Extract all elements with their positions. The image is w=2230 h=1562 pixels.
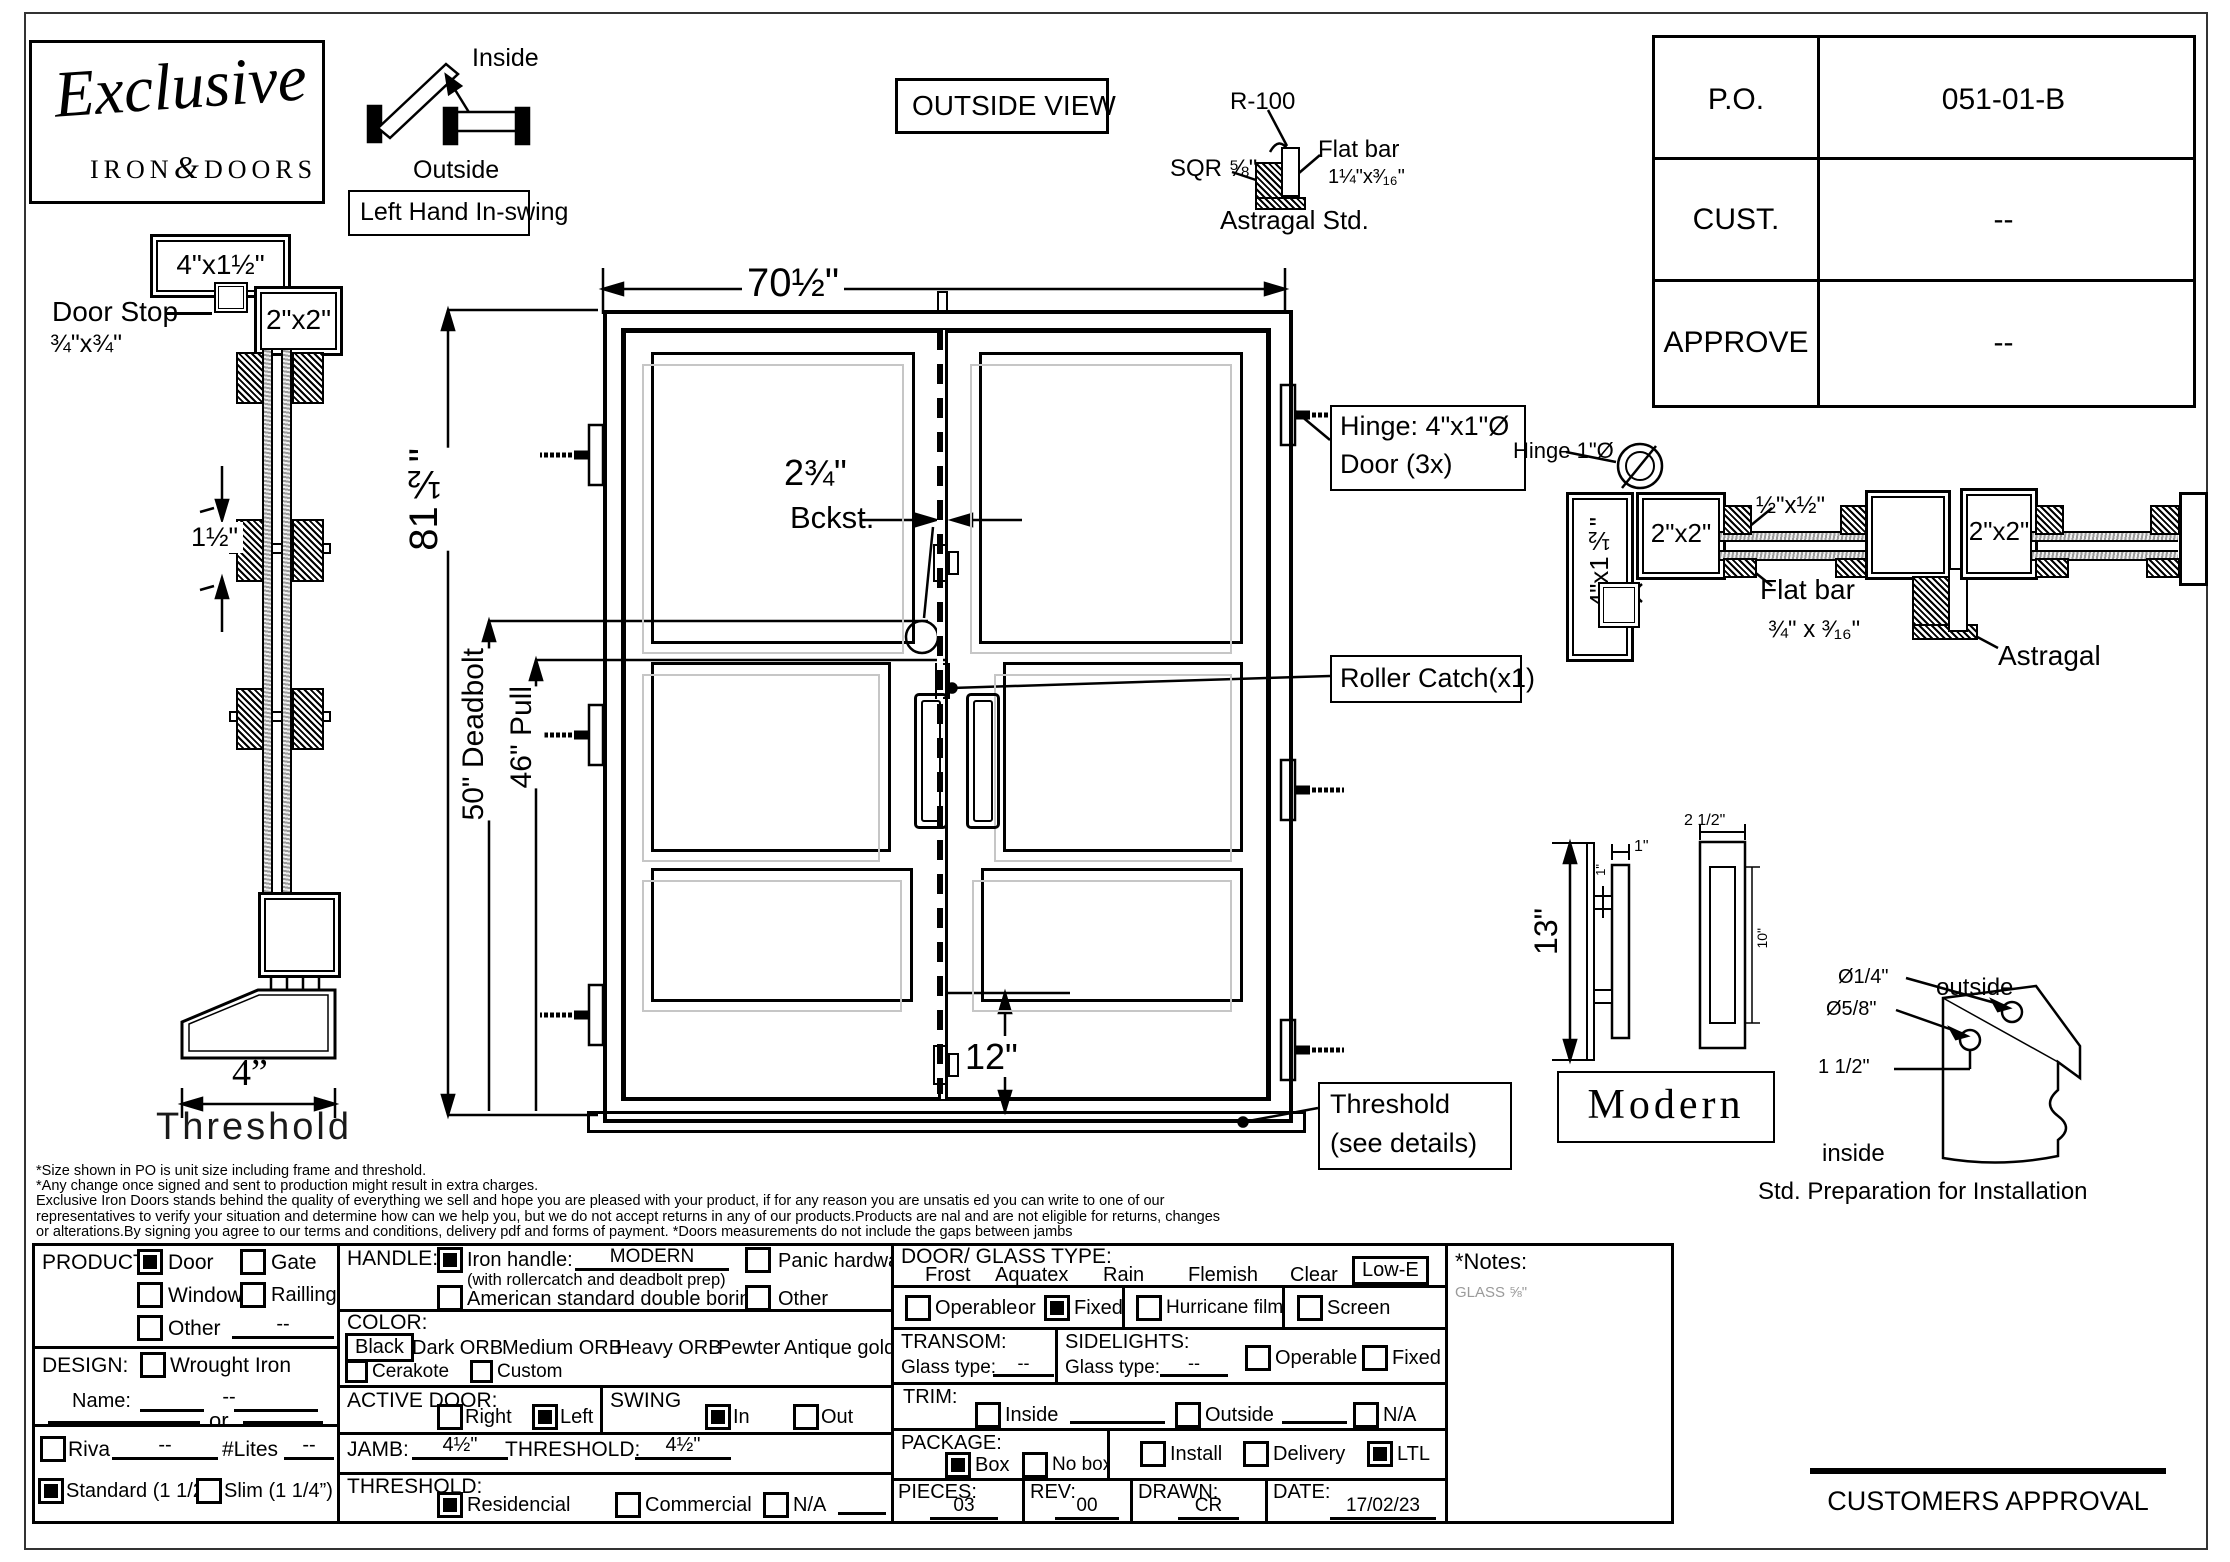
po-value: 051-01-B bbox=[1820, 83, 2187, 118]
swing-label: SWING bbox=[610, 1389, 681, 1413]
threshold-note-box: Threshold (see details) bbox=[1318, 1082, 1512, 1170]
jamb-field[interactable]: 4½" bbox=[412, 1434, 508, 1460]
approve-label: APPROVE bbox=[1655, 326, 1817, 361]
handle-detail-shapes bbox=[1552, 824, 1760, 1060]
swing-type-box: Left Hand In-swing bbox=[348, 190, 530, 236]
astragal-bottom-bar bbox=[1255, 197, 1306, 210]
checkbox-delivery[interactable] bbox=[1243, 1441, 1269, 1467]
threshold-na-label: N/A bbox=[793, 1494, 826, 1517]
brand-ampersand-ornament: & bbox=[174, 149, 199, 186]
color-antiquegold[interactable]: Antique gold bbox=[784, 1337, 895, 1360]
jamb-threshold-label: THRESHOLD: bbox=[505, 1438, 640, 1462]
astragal-flatbar-label: Flat bar bbox=[1318, 136, 1399, 164]
plan-astragal-hatch bbox=[1912, 576, 1952, 630]
elev-glass-2 bbox=[281, 350, 292, 892]
hinge-note-box: Hinge: 4"x1"Ø Door (3x) bbox=[1330, 405, 1526, 491]
fixed-label: Fixed bbox=[1074, 1297, 1123, 1320]
delivery-label: Delivery bbox=[1273, 1443, 1345, 1466]
design-label: DESIGN: bbox=[42, 1354, 128, 1378]
door-height-dim: 81½" bbox=[396, 448, 452, 551]
brand-iron: IRON bbox=[90, 155, 174, 185]
rev-field[interactable]: 00 bbox=[1055, 1495, 1119, 1520]
install-inside-label: inside bbox=[1822, 1140, 1885, 1168]
product-window-label: Window bbox=[168, 1284, 243, 1308]
product-other-label: Other bbox=[168, 1317, 221, 1341]
handle-name: Modern bbox=[1559, 1081, 1773, 1129]
notes-value[interactable]: GLASS ⅝" bbox=[1455, 1284, 1527, 1301]
install-outside-label: outside bbox=[1936, 974, 2013, 1002]
elev-hatch-2b bbox=[292, 519, 324, 582]
checkbox-riva[interactable] bbox=[40, 1436, 66, 1462]
plan-astragal-label: Astragal bbox=[1998, 640, 2101, 672]
view-label: OUTSIDE VIEW bbox=[912, 90, 1116, 122]
threshold-na-line bbox=[838, 1512, 886, 1515]
elev-hatch-1b bbox=[292, 352, 324, 404]
trim-outside-line bbox=[1282, 1421, 1347, 1424]
checkbox-commercial[interactable] bbox=[615, 1492, 641, 1518]
door-sill bbox=[587, 1111, 1306, 1133]
glass-aquatex[interactable]: Aquatex bbox=[995, 1264, 1068, 1287]
product-gate-label: Gate bbox=[271, 1251, 317, 1275]
checkbox-screen[interactable] bbox=[1297, 1295, 1323, 1321]
approval-signature-line[interactable] bbox=[1810, 1468, 2166, 1474]
checkbox-threshold-na[interactable] bbox=[763, 1492, 789, 1518]
doorstop-size: ¾"x¾" bbox=[50, 330, 122, 359]
hurricane-label: Hurricane film bbox=[1166, 1297, 1283, 1319]
trim-inside-line bbox=[1070, 1421, 1165, 1424]
trim-inside-label: Inside bbox=[1005, 1404, 1058, 1427]
checkbox-door[interactable] bbox=[137, 1249, 163, 1275]
swing-type-label: Left Hand In-swing bbox=[360, 198, 568, 227]
plan-hatch-a1 bbox=[1723, 505, 1752, 535]
left-label: Left bbox=[560, 1406, 593, 1429]
view-label-box: OUTSIDE VIEW bbox=[895, 78, 1109, 134]
install-detail-shapes bbox=[1894, 978, 2080, 1163]
elev-bottom-tube-inner bbox=[264, 898, 335, 972]
checkbox-left[interactable] bbox=[532, 1404, 558, 1430]
custom-color-label: Custom bbox=[497, 1361, 562, 1383]
checkbox-install[interactable] bbox=[1140, 1441, 1166, 1467]
checkbox-trim-inside[interactable] bbox=[975, 1402, 1001, 1428]
astragal-flat-piece bbox=[1281, 147, 1300, 197]
swing-outside-label: Outside bbox=[413, 156, 499, 185]
hinge-note-line2: Door (3x) bbox=[1340, 449, 1453, 480]
product-other-field[interactable]: -- bbox=[232, 1313, 334, 1339]
checkbox-out[interactable] bbox=[793, 1404, 819, 1430]
glass-panel-left-mid bbox=[651, 662, 891, 852]
astragal-caption: Astragal Std. bbox=[1220, 206, 1369, 236]
transom-glass-field[interactable]: -- bbox=[993, 1353, 1054, 1377]
product-railing-label: Railling bbox=[271, 1284, 337, 1307]
checkbox-product-other[interactable] bbox=[137, 1315, 163, 1341]
elev-hatch-3b bbox=[292, 688, 324, 750]
deadbolt-dim: 50" Deadbolt bbox=[452, 648, 497, 820]
plan-half-label: ½"x½" bbox=[1756, 492, 1825, 520]
handle-name-box: Modern bbox=[1557, 1071, 1775, 1143]
operable-or-label: or bbox=[1018, 1297, 1036, 1320]
lites-field[interactable]: -- bbox=[284, 1434, 334, 1460]
handle-other-label: Other bbox=[778, 1288, 828, 1311]
in-label: In bbox=[733, 1406, 750, 1429]
brand-script: Exclusive bbox=[52, 40, 310, 133]
checkbox-in[interactable] bbox=[705, 1404, 731, 1430]
po-table-hline2 bbox=[1655, 279, 2193, 282]
glass-frost[interactable]: Frost bbox=[925, 1264, 971, 1287]
install-d2-label: Ø5/8" bbox=[1826, 998, 1876, 1021]
checkbox-package-box[interactable] bbox=[945, 1452, 971, 1478]
checkbox-fixed[interactable] bbox=[1044, 1295, 1070, 1321]
astragal-flatbar-size: 1¼"x³⁄₁₆" bbox=[1328, 166, 1405, 189]
swing-diagram-shapes bbox=[368, 64, 529, 144]
checkbox-american-boring[interactable] bbox=[437, 1285, 463, 1311]
glass-panel-right-mid bbox=[1003, 662, 1243, 852]
install-offset-label: 1 1/2" bbox=[1818, 1056, 1870, 1079]
plan-right-jamb bbox=[2179, 492, 2208, 586]
po-table-hline1 bbox=[1655, 157, 2193, 160]
doorstop-leader bbox=[166, 312, 212, 315]
swing-inside-label: Inside bbox=[472, 44, 539, 73]
brand-doors: DOORS bbox=[204, 155, 317, 185]
checkbox-sidelight-fixed[interactable] bbox=[1362, 1345, 1388, 1371]
sidelight-operable-label: Operable bbox=[1275, 1347, 1357, 1370]
backset-dim: 2¾" bbox=[784, 452, 847, 493]
plan-hinge-label: Hinge 1"Ø bbox=[1513, 438, 1614, 463]
elev-frame-label: 4"x1½" bbox=[153, 249, 288, 281]
hinge-note-line1: Hinge: 4"x1"Ø bbox=[1340, 411, 1509, 442]
riva-field[interactable]: -- bbox=[112, 1434, 218, 1460]
residential-label: Residencial bbox=[467, 1494, 570, 1517]
plan-tube2-label: 2"x2" bbox=[1963, 517, 2035, 547]
right-label: Right bbox=[465, 1406, 512, 1429]
pull-handle-left-inner bbox=[921, 700, 941, 822]
riva-label: Riva bbox=[68, 1438, 110, 1462]
elev-bottom-tube bbox=[258, 892, 341, 978]
plan-flatbar-size: ¾" x ³⁄₁₆" bbox=[1768, 616, 1860, 644]
transom-label: TRANSOM: bbox=[901, 1331, 1007, 1354]
checkbox-ltl[interactable] bbox=[1367, 1441, 1393, 1467]
elev-hatch-1a bbox=[236, 352, 264, 404]
drawing-sheet: Exclusive IRON & DOORS Inside Outside Le… bbox=[0, 0, 2230, 1562]
checkbox-right[interactable] bbox=[437, 1404, 463, 1430]
color-darkorb[interactable]: Dark ORB bbox=[412, 1337, 503, 1360]
ltl-label: LTL bbox=[1397, 1443, 1430, 1466]
install-label: Install bbox=[1170, 1443, 1222, 1466]
glass-rain[interactable]: Rain bbox=[1103, 1264, 1144, 1287]
pull-dim: 46" Pull bbox=[500, 686, 545, 788]
plan-hatch-b3 bbox=[2150, 505, 2180, 535]
operable-label: Operable bbox=[935, 1297, 1017, 1320]
handle-one-top: 1" bbox=[1634, 838, 1649, 856]
threshold-note-line1: Threshold bbox=[1330, 1089, 1450, 1120]
door-width-dim: 70½" bbox=[742, 260, 844, 306]
hinges-left bbox=[540, 425, 603, 1045]
checkbox-window[interactable] bbox=[137, 1282, 163, 1308]
plan-tube1-box: 2"x2" bbox=[1636, 492, 1726, 580]
glass-lowe-selected[interactable]: Low-E bbox=[1352, 1256, 1429, 1285]
elev-tube-box: 2"x2" bbox=[254, 286, 343, 356]
threshold-caption: Threshold bbox=[156, 1106, 352, 1150]
cerakote-label: Cerakote bbox=[372, 1361, 449, 1383]
jamb-label: JAMB: bbox=[347, 1438, 409, 1462]
plan-hatch-b4 bbox=[2146, 558, 2180, 578]
plan-hatch-b1 bbox=[2035, 505, 2064, 535]
elev-tube-label: 2"x2" bbox=[257, 304, 340, 336]
disclaimer-line5: or alterations.By signing you agree to o… bbox=[36, 1224, 1073, 1241]
astragal-r-label: R-100 bbox=[1230, 88, 1295, 116]
plan-tube1-label: 2"x2" bbox=[1639, 519, 1723, 549]
product-door-label: Door bbox=[168, 1251, 214, 1275]
sidelights-glass-label: Glass type: bbox=[1065, 1357, 1160, 1379]
date-field[interactable]: 17/02/23 bbox=[1330, 1495, 1436, 1520]
color-pewter[interactable]: Pewter bbox=[718, 1337, 780, 1360]
handle-one-side: 1" bbox=[1594, 864, 1609, 876]
trim-label: TRIM: bbox=[903, 1386, 957, 1409]
design-wrought-label: Wrought Iron bbox=[170, 1354, 291, 1378]
plan-doorstop-box bbox=[1598, 582, 1640, 628]
disclaimer-line3: Exclusive Iron Doors stands behind the q… bbox=[36, 1193, 1164, 1210]
doorstop-label: Door Stop bbox=[52, 296, 178, 328]
checkbox-residential[interactable] bbox=[437, 1492, 463, 1518]
plan-astragal-strip bbox=[1912, 624, 1978, 640]
jamb-threshold-field[interactable]: 4½" bbox=[635, 1434, 731, 1460]
elev-glass-1 bbox=[262, 350, 273, 892]
glass-panel-left-top bbox=[651, 352, 915, 644]
plan-doorstop-inner bbox=[1603, 587, 1635, 623]
transom-glass-label: Glass type: bbox=[901, 1357, 996, 1379]
plan-midbox bbox=[1865, 490, 1951, 580]
handle-slot-dim: 10" bbox=[1754, 928, 1770, 949]
plan-hatch-a2 bbox=[1723, 558, 1757, 578]
pull-handle-right bbox=[966, 693, 1000, 829]
glass-panel-right-top bbox=[979, 352, 1243, 644]
elev-doorstop-inner bbox=[218, 286, 244, 309]
trim-na-label: N/A bbox=[1383, 1404, 1416, 1427]
cust-label: CUST. bbox=[1655, 203, 1817, 238]
po-table: P.O. 051-01-B CUST. -- APPROVE -- bbox=[1652, 35, 2196, 408]
glass-panel-right-bottom bbox=[981, 868, 1243, 1002]
checkbox-package-nobox[interactable] bbox=[1022, 1452, 1048, 1478]
notes-label: *Notes: bbox=[1455, 1249, 1527, 1274]
commercial-label: Commercial bbox=[645, 1494, 752, 1517]
install-caption: Std. Preparation for Installation bbox=[1758, 1178, 2088, 1206]
color-heavyorb[interactable]: Heavy ORB bbox=[616, 1337, 722, 1360]
checkbox-iron-handle[interactable] bbox=[437, 1247, 463, 1273]
roller-note: Roller Catch(x1) bbox=[1340, 663, 1535, 694]
drawn-field[interactable]: CR bbox=[1178, 1495, 1239, 1520]
handle-plate-dim: 2 1/2" bbox=[1684, 812, 1725, 830]
checkbox-wrought-iron[interactable] bbox=[140, 1352, 166, 1378]
approval-label: CUSTOMERS APPROVAL bbox=[1810, 1486, 2166, 1517]
plan-jamb-box: 4"x1½" bbox=[1566, 492, 1634, 662]
checkbox-standard[interactable] bbox=[38, 1478, 64, 1504]
date-label: DATE: bbox=[1273, 1481, 1330, 1504]
approve-value: -- bbox=[1820, 326, 2187, 361]
iron-handle-field[interactable]: MODERN bbox=[575, 1246, 729, 1271]
sidelight-fixed-label: Fixed bbox=[1392, 1347, 1441, 1370]
checkbox-trim-na[interactable] bbox=[1353, 1402, 1379, 1428]
package-box-label: Box bbox=[975, 1454, 1009, 1477]
product-label: PRODUCT: bbox=[42, 1251, 149, 1275]
handle-label: HANDLE: bbox=[347, 1247, 438, 1271]
po-label: P.O. bbox=[1655, 83, 1817, 118]
plan-midbox-inner bbox=[1871, 496, 1945, 574]
backset-label: Bckst. bbox=[790, 500, 874, 536]
slim-label: Slim (1 1/4”) bbox=[224, 1480, 333, 1503]
checkbox-custom-color[interactable] bbox=[470, 1360, 493, 1383]
color-selected[interactable]: Black bbox=[345, 1333, 414, 1362]
design-name-label: Name: bbox=[72, 1390, 131, 1413]
handle-height-dim: 13" bbox=[1528, 908, 1565, 955]
checkbox-railing[interactable] bbox=[240, 1282, 266, 1308]
pull-handle-right-inner bbox=[973, 700, 993, 822]
sidelights-glass-field[interactable]: -- bbox=[1160, 1353, 1228, 1377]
trim-outside-label: Outside bbox=[1205, 1404, 1274, 1427]
elev-gap-dim: 1½" bbox=[186, 522, 243, 553]
package-nobox-label: No box bbox=[1052, 1454, 1112, 1476]
out-label: Out bbox=[821, 1406, 853, 1429]
bottom-dim: 12" bbox=[960, 1036, 1023, 1077]
checkbox-handle-other[interactable] bbox=[745, 1285, 771, 1311]
standard-label: Standard (1 1/2”) bbox=[66, 1480, 217, 1503]
plan-hatch-b2 bbox=[2035, 558, 2069, 578]
color-mediumorb[interactable]: Medium ORB bbox=[502, 1337, 622, 1360]
screen-label: Screen bbox=[1327, 1297, 1390, 1320]
pieces-field[interactable]: 03 bbox=[930, 1495, 998, 1520]
checkbox-trim-outside[interactable] bbox=[1175, 1402, 1201, 1428]
checkbox-cerakote[interactable] bbox=[345, 1360, 368, 1383]
checkbox-slim[interactable] bbox=[196, 1478, 222, 1504]
sidelights-label: SIDELIGHTS: bbox=[1065, 1331, 1189, 1354]
checkbox-hurricane[interactable] bbox=[1136, 1295, 1162, 1321]
lites-label: #Lites bbox=[222, 1438, 278, 1462]
checkbox-gate[interactable] bbox=[240, 1249, 266, 1275]
checkbox-sidelight-operable[interactable] bbox=[1245, 1345, 1271, 1371]
color-label: COLOR: bbox=[347, 1311, 428, 1335]
american-boring-label: American standard double boring bbox=[467, 1288, 762, 1311]
threshold-dim: 4” bbox=[232, 1052, 268, 1096]
glass-clear[interactable]: Clear bbox=[1290, 1264, 1338, 1287]
install-d1-label: Ø1/4" bbox=[1838, 966, 1888, 989]
iron-handle-label: Iron handle: bbox=[467, 1249, 573, 1272]
astragal-sqr-label: SQR ⅝" bbox=[1170, 155, 1257, 183]
cust-value: -- bbox=[1820, 203, 2187, 238]
logo-box: Exclusive IRON & DOORS bbox=[29, 40, 325, 204]
checkbox-panic-hardware[interactable] bbox=[745, 1247, 771, 1273]
plan-tube2-box: 2"x2" bbox=[1960, 488, 2038, 580]
glass-panel-left-bottom bbox=[651, 868, 913, 1002]
elev-hatch-3a bbox=[236, 688, 264, 750]
plan-flatbar-label: Flat bar bbox=[1760, 574, 1855, 606]
checkbox-operable[interactable] bbox=[905, 1295, 931, 1321]
glass-flemish[interactable]: Flemish bbox=[1188, 1264, 1258, 1287]
roller-note-box: Roller Catch(x1) bbox=[1330, 655, 1522, 703]
pull-handle-left bbox=[914, 693, 948, 829]
elev-doorstop-box bbox=[214, 282, 248, 313]
threshold-note-line2: (see details) bbox=[1330, 1128, 1477, 1159]
